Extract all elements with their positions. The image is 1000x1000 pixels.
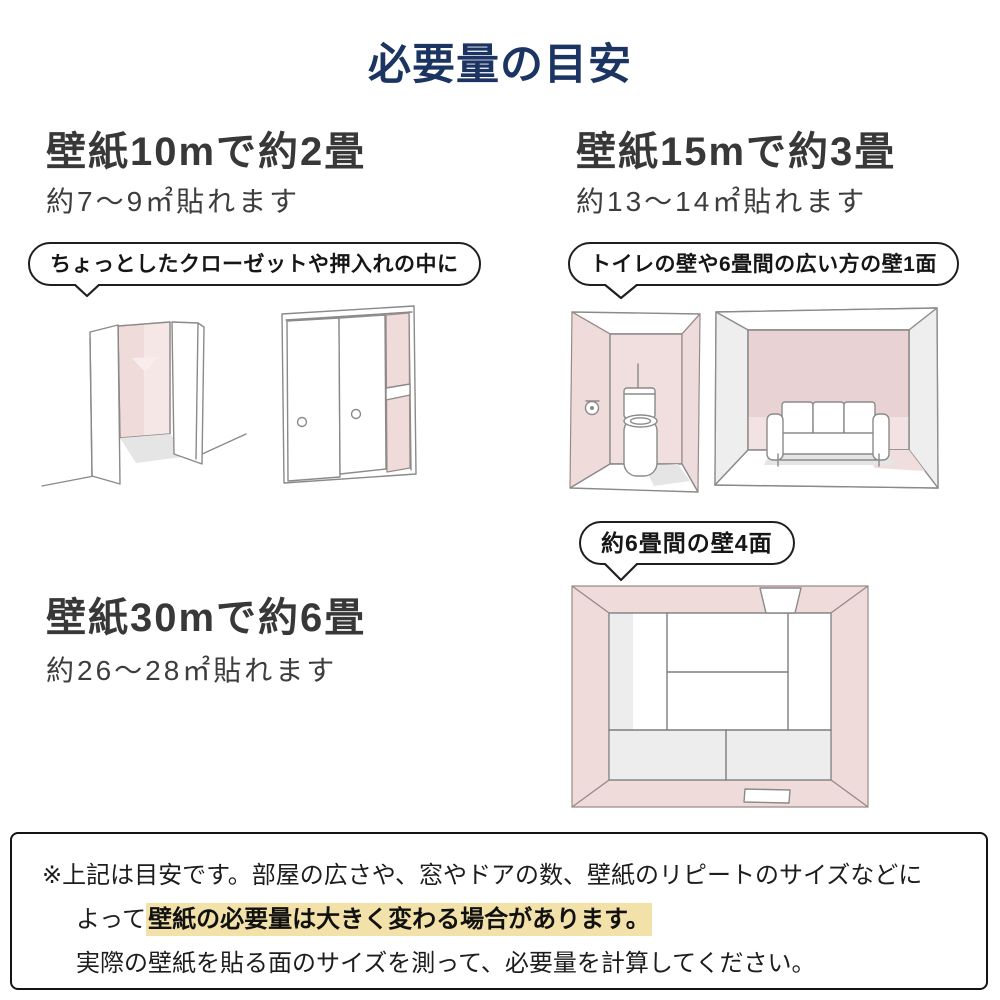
subtitle-10m: 約7〜9㎡貼れます [46,186,300,218]
wallpaper-amount-guide-infographic: 必要量の目安 壁紙10mで約2畳 約7〜9㎡貼れます ちょっとしたクローゼットや… [0,0,1000,1000]
tatami-room-top-view-sketch [570,584,870,809]
bubble-10m-tail [72,284,104,299]
bubble-10m: ちょっとしたクローゼットや押入れの中に [28,242,481,286]
subtitle-30m: 約26〜28㎡貼れます [46,655,337,687]
note-box: ※上記は目安です。部屋の広さや、窓やドアの数、壁紙のリピートのサイズなどに よっ… [10,832,988,990]
heading-15m: 壁紙15mで約3畳 [576,132,896,172]
bubble-15m: トイレの壁や6畳間の広い方の壁1面 [568,242,959,286]
toilet-room-sketch [566,304,706,496]
note-line-2-prefix: よって [76,906,146,933]
note-line-1: ※上記は目安です。部屋の広さや、窓やドアの数、壁紙のリピートのサイズなどに [42,854,962,898]
note-line-2: よって壁紙の必要量は大きく変わる場合があります。 [42,898,962,942]
heading-30m: 壁紙30mで約6畳 [46,598,366,638]
bubble-6tatami: 約6畳間の壁4面 [579,521,795,565]
open-closet-sketch [40,308,250,508]
note-line-3: 実際の壁紙を貼る面のサイズを測って、必要量を計算してください。 [42,942,962,986]
bubble-6tatami-tail [602,563,640,583]
sofa-room-sketch [712,302,942,490]
note-line-2-highlight: 壁紙の必要量は大きく変わる場合があります。 [146,903,652,936]
sliding-closet-sketch [246,302,431,487]
page-title: 必要量の目安 [0,30,1000,92]
heading-10m: 壁紙10mで約2畳 [46,132,366,172]
subtitle-15m: 約13〜14㎡貼れます [576,186,867,218]
bubble-15m-tail [602,284,640,301]
